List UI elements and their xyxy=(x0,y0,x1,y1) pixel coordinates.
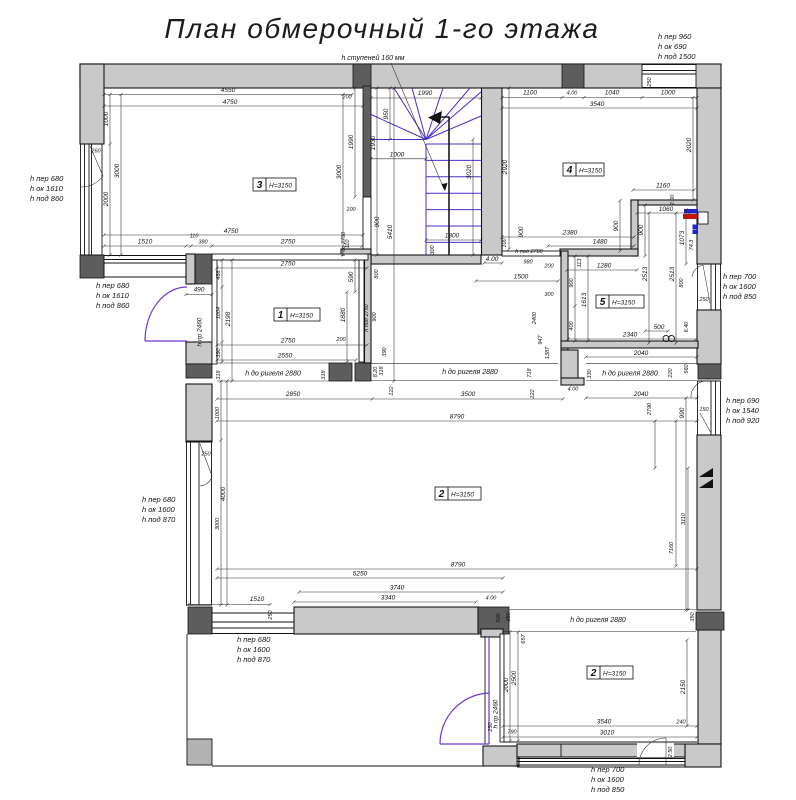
svg-text:490: 490 xyxy=(194,287,205,294)
svg-text:1073: 1073 xyxy=(679,230,686,245)
svg-text:2850: 2850 xyxy=(285,391,301,398)
svg-text:h ок 690: h ок 690 xyxy=(658,42,687,51)
svg-text:400: 400 xyxy=(569,320,575,330)
svg-text:3: 3 xyxy=(257,180,263,191)
svg-text:h пер 680: h пер 680 xyxy=(96,281,130,290)
svg-text:1613: 1613 xyxy=(581,292,588,307)
svg-text:900: 900 xyxy=(613,220,620,231)
svg-text:h под 2750: h под 2750 xyxy=(364,303,370,331)
svg-text:h пер 700: h пер 700 xyxy=(591,765,625,774)
svg-text:900: 900 xyxy=(638,224,645,235)
svg-text:2040: 2040 xyxy=(633,350,649,357)
svg-text:250: 250 xyxy=(268,609,274,620)
svg-text:900: 900 xyxy=(569,277,575,287)
svg-text:4: 4 xyxy=(566,165,573,176)
svg-text:4.00: 4.00 xyxy=(486,256,499,263)
svg-text:2150: 2150 xyxy=(680,679,687,695)
svg-text:2513: 2513 xyxy=(669,266,676,282)
svg-text:3000: 3000 xyxy=(336,164,343,179)
svg-text:980: 980 xyxy=(523,260,533,266)
svg-text:250: 250 xyxy=(488,721,494,732)
svg-text:900: 900 xyxy=(374,216,381,227)
svg-text:2380: 2380 xyxy=(562,230,578,237)
svg-text:790: 790 xyxy=(507,730,517,736)
svg-text:1000: 1000 xyxy=(215,406,221,419)
svg-text:390: 390 xyxy=(216,347,222,357)
svg-text:h под 870: h под 870 xyxy=(142,515,176,524)
svg-text:h пер 680: h пер 680 xyxy=(30,174,64,183)
svg-text:h пер 680: h пер 680 xyxy=(237,635,271,644)
svg-text:1880: 1880 xyxy=(340,307,347,322)
svg-text:1510: 1510 xyxy=(138,239,153,246)
svg-text:500: 500 xyxy=(654,324,665,331)
svg-text:380: 380 xyxy=(198,240,208,246)
svg-text:5250: 5250 xyxy=(353,571,368,578)
svg-text:4.00: 4.00 xyxy=(567,91,579,97)
svg-text:8790: 8790 xyxy=(450,414,465,421)
svg-text:318: 318 xyxy=(379,365,385,375)
svg-text:2040: 2040 xyxy=(633,391,649,398)
svg-text:1800: 1800 xyxy=(445,233,460,240)
svg-text:h пер 680: h пер 680 xyxy=(142,495,176,504)
svg-text:260: 260 xyxy=(90,149,101,155)
svg-text:1060: 1060 xyxy=(659,206,674,213)
svg-text:718: 718 xyxy=(527,367,533,377)
svg-text:1280: 1280 xyxy=(597,263,612,270)
svg-text:1100: 1100 xyxy=(523,90,537,97)
svg-text:h под 1500: h под 1500 xyxy=(658,52,696,61)
svg-text:330: 330 xyxy=(587,368,593,378)
svg-text:2340: 2340 xyxy=(622,332,638,339)
svg-text:h под 860: h под 860 xyxy=(30,194,64,203)
svg-text:1000: 1000 xyxy=(103,111,110,126)
svg-text:2790: 2790 xyxy=(647,402,653,416)
svg-text:990: 990 xyxy=(679,407,686,418)
svg-text:2: 2 xyxy=(590,668,597,679)
svg-text:3540: 3540 xyxy=(590,101,605,108)
svg-text:122: 122 xyxy=(530,389,536,398)
svg-text:h ок 1610: h ок 1610 xyxy=(96,291,130,300)
svg-text:h ступеней 160 мм: h ступеней 160 мм xyxy=(341,54,404,62)
svg-text:4550: 4550 xyxy=(221,87,236,94)
svg-text:1990: 1990 xyxy=(418,90,433,97)
svg-text:H=3150: H=3150 xyxy=(451,492,474,499)
svg-text:1: 1 xyxy=(278,310,284,321)
svg-text:h под 2780: h под 2780 xyxy=(515,249,543,255)
svg-text:900: 900 xyxy=(518,226,525,237)
svg-text:300: 300 xyxy=(430,244,436,254)
svg-text:h ок 1610: h ок 1610 xyxy=(30,184,64,193)
svg-text:250: 250 xyxy=(698,297,709,303)
svg-text:3340: 3340 xyxy=(381,595,396,602)
svg-text:657: 657 xyxy=(521,633,527,643)
svg-text:1930: 1930 xyxy=(370,135,377,150)
svg-text:500: 500 xyxy=(496,612,502,622)
svg-text:200: 200 xyxy=(335,337,346,343)
svg-text:947: 947 xyxy=(538,334,544,344)
svg-text:113: 113 xyxy=(577,258,583,268)
svg-text:2.50: 2.50 xyxy=(668,746,674,759)
svg-text:h пер 690: h пер 690 xyxy=(726,396,760,405)
svg-text:390: 390 xyxy=(382,346,388,356)
svg-text:350: 350 xyxy=(506,611,512,621)
svg-text:1990: 1990 xyxy=(348,134,355,149)
svg-text:488: 488 xyxy=(216,269,222,279)
svg-text:1000: 1000 xyxy=(661,90,676,97)
svg-text:2: 2 xyxy=(438,489,445,500)
svg-text:h под 870: h под 870 xyxy=(237,655,271,664)
svg-text:150: 150 xyxy=(699,407,709,413)
svg-text:4750: 4750 xyxy=(223,99,238,106)
svg-text:2000: 2000 xyxy=(503,677,510,693)
svg-text:110: 110 xyxy=(345,239,351,249)
svg-text:H=3150: H=3150 xyxy=(603,671,626,678)
svg-text:350: 350 xyxy=(690,611,696,621)
svg-text:2500: 2500 xyxy=(511,670,518,686)
svg-text:1480: 1480 xyxy=(593,239,608,246)
svg-text:8.20: 8.20 xyxy=(373,366,379,378)
svg-text:h ок 1600: h ок 1600 xyxy=(591,775,625,784)
svg-text:h ок 1600: h ок 1600 xyxy=(237,645,271,654)
svg-text:2920: 2920 xyxy=(502,159,509,175)
svg-text:3740: 3740 xyxy=(390,585,405,592)
svg-text:План обмерочный 1-го этажа: План обмерочный 1-го этажа xyxy=(164,13,599,44)
svg-text:3000: 3000 xyxy=(114,163,121,178)
svg-text:2198: 2198 xyxy=(225,311,232,327)
svg-text:2000: 2000 xyxy=(103,191,110,207)
svg-text:h ок 1600: h ок 1600 xyxy=(142,505,176,514)
svg-text:3540: 3540 xyxy=(597,719,612,726)
svg-text:5: 5 xyxy=(600,297,606,308)
svg-text:h пр 2460: h пр 2460 xyxy=(197,317,204,346)
svg-text:2550: 2550 xyxy=(277,353,293,360)
svg-text:100: 100 xyxy=(346,207,356,213)
svg-text:3020: 3020 xyxy=(466,164,473,179)
svg-text:122: 122 xyxy=(389,386,395,395)
svg-text:2750: 2750 xyxy=(280,261,296,268)
svg-text:h под 920: h под 920 xyxy=(726,416,760,425)
svg-text:100: 100 xyxy=(502,237,508,247)
svg-text:4.00: 4.00 xyxy=(568,387,580,393)
svg-text:220: 220 xyxy=(668,367,674,378)
svg-text:590: 590 xyxy=(348,271,355,282)
svg-text:4750: 4750 xyxy=(224,228,239,235)
svg-text:900: 900 xyxy=(372,311,378,321)
svg-text:6.40: 6.40 xyxy=(684,321,690,333)
svg-text:2513: 2513 xyxy=(642,266,649,282)
svg-text:950: 950 xyxy=(383,108,390,119)
svg-text:1160: 1160 xyxy=(656,183,670,190)
svg-text:h под 850: h под 850 xyxy=(723,292,757,301)
svg-text:2.00: 2.00 xyxy=(670,194,676,207)
svg-text:1387: 1387 xyxy=(545,346,551,359)
svg-text:H=3150: H=3150 xyxy=(290,313,313,320)
svg-text:560: 560 xyxy=(684,363,690,373)
svg-text:4000: 4000 xyxy=(220,486,227,501)
svg-text:h пер 700: h пер 700 xyxy=(723,272,757,281)
svg-text:h ок 1600: h ок 1600 xyxy=(723,282,757,291)
svg-text:7160: 7160 xyxy=(669,541,675,554)
svg-text:2750: 2750 xyxy=(280,338,296,345)
svg-text:2400: 2400 xyxy=(532,311,538,325)
svg-text:h до ригеля 2880: h до ригеля 2880 xyxy=(602,370,658,378)
svg-text:5410: 5410 xyxy=(387,224,394,239)
svg-text:250: 250 xyxy=(200,452,211,458)
svg-text:1000: 1000 xyxy=(390,152,405,159)
svg-text:2020: 2020 xyxy=(686,137,693,153)
svg-text:h ок 1540: h ок 1540 xyxy=(726,406,760,415)
svg-text:800: 800 xyxy=(374,268,380,278)
svg-text:2750: 2750 xyxy=(280,239,296,246)
svg-text:200: 200 xyxy=(543,264,554,270)
svg-text:h до ригеля 2880: h до ригеля 2880 xyxy=(442,368,498,376)
svg-text:250: 250 xyxy=(647,76,653,87)
svg-text:318: 318 xyxy=(216,369,222,379)
svg-text:318: 318 xyxy=(321,369,327,379)
svg-text:1040: 1040 xyxy=(605,90,620,97)
svg-text:3000: 3000 xyxy=(215,517,221,530)
svg-text:1004: 1004 xyxy=(216,307,222,319)
svg-text:h до ригеля 2880: h до ригеля 2880 xyxy=(570,616,626,624)
svg-text:8790: 8790 xyxy=(451,562,466,569)
svg-text:3010: 3010 xyxy=(600,730,615,737)
svg-text:74.3: 74.3 xyxy=(689,239,695,251)
svg-text:H=3150: H=3150 xyxy=(579,168,602,175)
svg-text:h до ригеля 2880: h до ригеля 2880 xyxy=(245,370,301,378)
svg-text:1500: 1500 xyxy=(514,274,529,281)
svg-text:H=3150: H=3150 xyxy=(269,183,292,190)
svg-text:h под 860: h под 860 xyxy=(96,301,130,310)
svg-text:4.00: 4.00 xyxy=(486,596,498,602)
svg-text:300: 300 xyxy=(544,292,554,298)
svg-text:h пер 960: h пер 960 xyxy=(658,32,692,41)
svg-text:800: 800 xyxy=(679,277,685,287)
svg-text:240: 240 xyxy=(675,720,686,726)
svg-text:1510: 1510 xyxy=(250,596,265,603)
svg-text:3500: 3500 xyxy=(461,391,476,398)
svg-text:h под 850: h под 850 xyxy=(591,785,625,794)
svg-text:H=3150: H=3150 xyxy=(612,300,635,307)
